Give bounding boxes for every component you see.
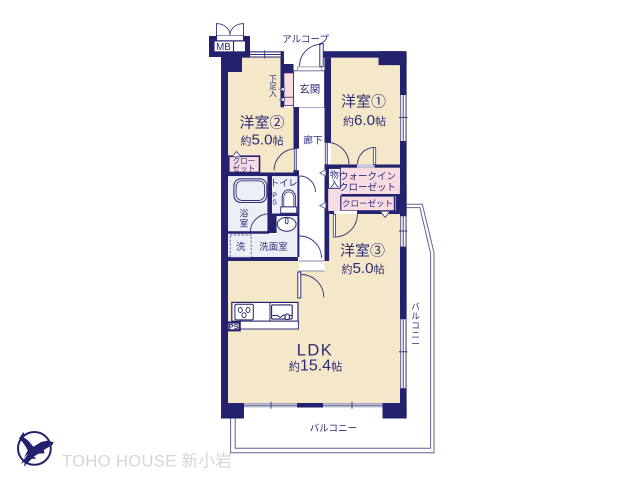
svg-text:ー: ー xyxy=(411,339,420,349)
svg-text:TOHO HOUSE 新小岩: TOHO HOUSE 新小岩 xyxy=(62,452,232,471)
svg-text:バルコニー: バルコニー xyxy=(310,423,357,434)
svg-text:クローゼット: クローゼット xyxy=(342,199,393,209)
svg-text:洋室①: 洋室① xyxy=(341,93,386,110)
svg-text:S: S xyxy=(272,199,277,206)
svg-text:クローゼット: クローゼット xyxy=(339,181,396,193)
svg-text:洋室②: 洋室② xyxy=(239,115,284,132)
svg-text:玄関: 玄関 xyxy=(299,83,320,96)
svg-text:アルコープ: アルコープ xyxy=(282,35,329,46)
svg-text:洗面室: 洗面室 xyxy=(259,241,288,253)
svg-text:入: 入 xyxy=(330,179,339,189)
svg-text:ウォークイン: ウォークイン xyxy=(339,171,396,182)
svg-text:廊下: 廊下 xyxy=(303,135,322,147)
svg-text:トイレ: トイレ xyxy=(270,178,298,188)
svg-text:洋室③: 洋室③ xyxy=(340,242,385,259)
svg-text:ゼット: ゼット xyxy=(233,163,256,173)
svg-text:PS: PS xyxy=(228,322,238,331)
svg-text:室: 室 xyxy=(239,218,248,229)
svg-text:入: 入 xyxy=(269,90,277,99)
svg-text:浴: 浴 xyxy=(239,209,248,219)
svg-text:MB: MB xyxy=(216,42,231,53)
svg-text:洗: 洗 xyxy=(236,241,246,253)
